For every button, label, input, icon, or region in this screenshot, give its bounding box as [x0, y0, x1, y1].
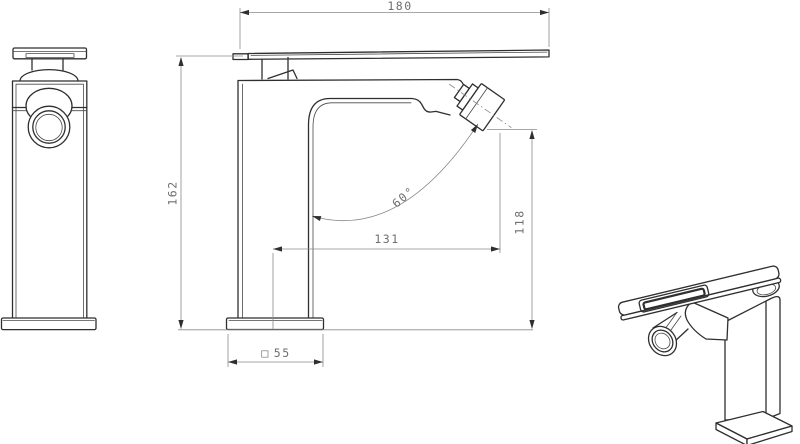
perspective-view: [618, 265, 792, 444]
technical-drawing-page: 180 162 131 118 60° □55: [0, 0, 800, 444]
dim-label-square-55: □55: [261, 346, 290, 360]
square-symbol: □: [261, 346, 269, 360]
side-view: [2, 48, 97, 330]
side-base-plate: [2, 318, 97, 330]
front-lever-tip-cap: [233, 54, 248, 60]
persp-body: [725, 297, 780, 420]
dim-outlet-height: 118: [487, 130, 537, 330]
dim-label-60deg: 60°: [389, 183, 417, 210]
dim-spout-reach: 131: [273, 133, 500, 329]
front-view: [178, 50, 549, 330]
dim-label-162: 162: [166, 180, 180, 205]
front-lever-stem: [262, 58, 297, 80]
persp-spout-housing: [685, 302, 728, 340]
front-body-outline: [238, 80, 468, 319]
side-aerator-face: [28, 106, 70, 148]
dim-label-118: 118: [513, 209, 527, 234]
dim-label-131: 131: [374, 232, 399, 246]
front-spout-underside-inner: [313, 103, 411, 318]
persp-aerator-face: [643, 321, 683, 361]
dim-label-180: 180: [387, 0, 412, 13]
front-base-plate: [227, 318, 324, 330]
front-spout-underside: [309, 99, 451, 319]
faucet-technical-drawing: 180 162 131 118 60° □55: [0, 0, 800, 444]
dim-base-square: □55: [228, 334, 323, 367]
dim-spout-angle: 60°: [311, 123, 480, 221]
dim-overall-width: 180: [240, 0, 549, 49]
side-hinge-dome: [20, 70, 78, 81]
dim-overall-height: 162: [166, 56, 244, 329]
